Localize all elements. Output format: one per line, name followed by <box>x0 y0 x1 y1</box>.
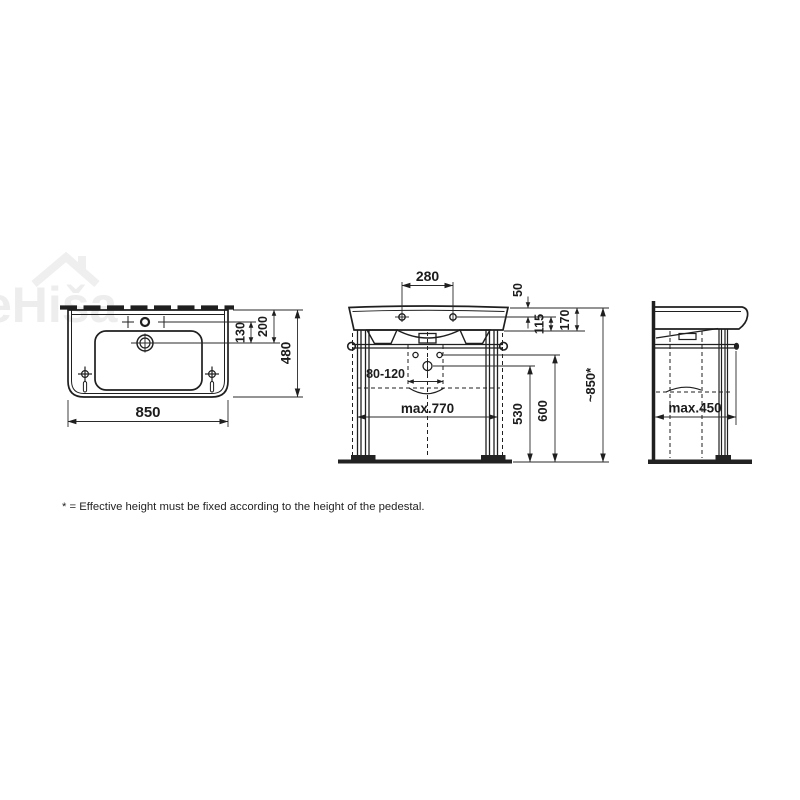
fixing-hole-left <box>78 367 92 393</box>
dim-280-label: 280 <box>416 268 440 284</box>
bowl-curve-side <box>666 387 701 392</box>
dim-850star-label: ~850* <box>583 367 598 402</box>
washbasin-dimension-drawing: eHiša <box>0 0 800 800</box>
hidden-lines-front <box>353 332 503 457</box>
frame-leg-left <box>358 330 370 456</box>
footnote-text: * = Effective height must be fixed accor… <box>62 501 424 513</box>
dim-130-label: 130 <box>234 322 248 343</box>
dim-50-label: 50 <box>511 283 525 297</box>
technical-drawing-page: eHiša <box>0 0 800 800</box>
dim-530-label: 530 <box>510 403 525 425</box>
foot-side <box>716 455 732 460</box>
dim-200-label: 200 <box>256 316 270 337</box>
rail-cap-side <box>734 343 739 350</box>
fixing-hole-right <box>205 367 219 393</box>
dim-max770-label: max.770 <box>401 401 454 416</box>
dim-600-label: 600 <box>535 400 550 422</box>
siphon-arc <box>409 388 444 394</box>
foot-right <box>481 455 506 460</box>
dim-850-label: 850 <box>135 404 160 421</box>
dim-480-label: 480 <box>279 342 294 365</box>
fixing-hole-front-right <box>437 352 442 357</box>
foot-left <box>351 455 376 460</box>
watermark-logo: eHiša <box>0 256 119 333</box>
fixing-hole-front-left <box>413 352 418 357</box>
tap-hole-right-front <box>450 312 456 322</box>
frame-leg-right <box>486 330 498 456</box>
watermark-chimney-icon <box>78 256 86 270</box>
rail-cap-left <box>348 342 356 350</box>
ceramic-rim-line <box>353 310 505 311</box>
gusset-left <box>367 330 397 344</box>
floor-line-side <box>648 460 752 465</box>
dim-80-120-label: 80-120 <box>366 367 405 381</box>
ceramic-side-profile <box>655 307 748 329</box>
dim-115-label: 115 <box>533 314 547 334</box>
drain-target <box>423 358 432 374</box>
ceramic-body <box>349 306 508 330</box>
dim-max450-label: max.450 <box>668 401 721 416</box>
tap-hole-left-front <box>395 312 409 322</box>
rail-cap-right <box>500 342 508 350</box>
floor-line-front <box>338 460 512 464</box>
front-view <box>338 306 512 464</box>
tap-hole <box>141 318 149 326</box>
dim-170-label: 170 <box>558 310 572 331</box>
watermark-text: eHiša <box>0 277 119 333</box>
